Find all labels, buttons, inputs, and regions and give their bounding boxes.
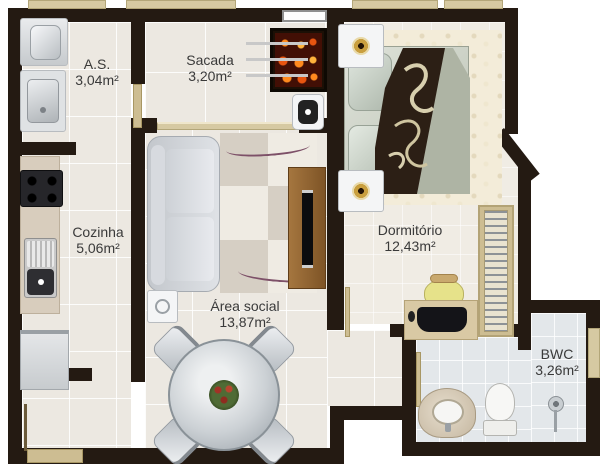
window-bedroom-2 xyxy=(444,0,503,9)
label-living: Área social 13,87m² xyxy=(190,298,300,330)
label-kitchen: Cozinha 5,06m² xyxy=(53,224,143,256)
wall-bwc-bottom xyxy=(402,442,600,456)
wall-service-kitchen-stub xyxy=(18,142,76,155)
sofa-seat-1 xyxy=(166,149,214,213)
table-centerpiece xyxy=(209,380,239,410)
label-bedroom-area: 12,43m² xyxy=(358,238,462,254)
bbq-skewer-3 xyxy=(246,74,308,77)
window-bedroom-1 xyxy=(352,0,438,9)
bed-duvet xyxy=(375,48,470,194)
door-service xyxy=(133,84,142,128)
refrigerator xyxy=(20,330,69,390)
label-balcony-area: 3,20m² xyxy=(165,68,255,84)
label-service: A.S. 3,04m² xyxy=(52,56,142,88)
door-bathroom-leaf xyxy=(416,352,421,407)
side-table-decor xyxy=(155,299,170,314)
wall-step-horizontal xyxy=(330,406,416,420)
wall-top-bedroom xyxy=(344,8,518,22)
label-bwc: BWC 3,26m² xyxy=(518,346,596,378)
nightstand-top-lamp xyxy=(352,37,370,55)
label-kitchen-name: Cozinha xyxy=(53,224,143,240)
label-living-name: Área social xyxy=(190,298,300,314)
label-bedroom-name: Dormitório xyxy=(358,222,462,238)
toilet-tank xyxy=(483,420,517,436)
balcony-sink-drain xyxy=(305,109,311,115)
toilet xyxy=(483,383,517,437)
window-balcony xyxy=(126,0,236,9)
shower-hose xyxy=(554,410,557,432)
sofa-seat-2 xyxy=(166,217,214,281)
label-bwc-name: BWC xyxy=(518,346,596,362)
nightstand-bottom xyxy=(338,170,384,212)
vanity-faucet xyxy=(445,423,451,432)
door-bedroom-leaf xyxy=(345,287,350,337)
wall-bedroom-right xyxy=(518,164,531,313)
kitchen-sink-drainboard xyxy=(27,241,54,267)
wardrobe xyxy=(478,205,514,337)
cooktop xyxy=(20,170,63,207)
wall-bedroom-right-top xyxy=(505,8,518,134)
label-service-name: A.S. xyxy=(52,56,142,72)
bbq-skewer-1 xyxy=(246,42,308,45)
sliding-door-balcony xyxy=(157,122,299,130)
sofa xyxy=(147,136,220,292)
balcony-sink xyxy=(292,94,324,130)
sofa-backrest xyxy=(151,145,165,285)
floor-hallway xyxy=(327,330,402,406)
door-entrance-leaf xyxy=(24,404,27,451)
vanity xyxy=(418,388,476,438)
washing-machine-lid xyxy=(30,25,61,60)
label-bedroom: Dormitório 12,43m² xyxy=(358,222,462,254)
window-balcony-small xyxy=(282,10,327,22)
kitchen-sink-faucet xyxy=(38,279,44,285)
label-service-area: 3,04m² xyxy=(52,72,142,88)
label-kitchen-area: 5,06m² xyxy=(53,240,143,256)
nightstand-bottom-lamp xyxy=(352,182,370,200)
toilet-bowl xyxy=(485,383,515,421)
wall-bwc-right xyxy=(586,300,600,456)
desk-mouse xyxy=(408,311,415,322)
laundry-tank-drain xyxy=(40,107,46,113)
floor-plan: A.S. 3,04m² Sacada 3,20m² Cozinha 5,06m²… xyxy=(0,0,600,464)
tv-panel xyxy=(288,167,326,289)
vanity-sink xyxy=(432,399,464,425)
label-balcony-name: Sacada xyxy=(165,52,255,68)
desk xyxy=(404,300,478,340)
window-service xyxy=(28,0,106,9)
label-balcony: Sacada 3,20m² xyxy=(165,52,255,84)
wall-bathroom-left xyxy=(402,337,416,456)
door-entrance xyxy=(27,449,83,463)
nightstand-top xyxy=(338,24,384,68)
side-table xyxy=(147,290,178,323)
desk-monitor xyxy=(417,307,467,332)
bbq-skewer-2 xyxy=(246,58,308,61)
label-living-area: 13,87m² xyxy=(190,314,300,330)
desk-chair-back xyxy=(430,274,458,283)
tv-screen xyxy=(302,190,313,268)
wardrobe-hangers xyxy=(484,210,508,332)
label-bwc-area: 3,26m² xyxy=(518,362,596,378)
